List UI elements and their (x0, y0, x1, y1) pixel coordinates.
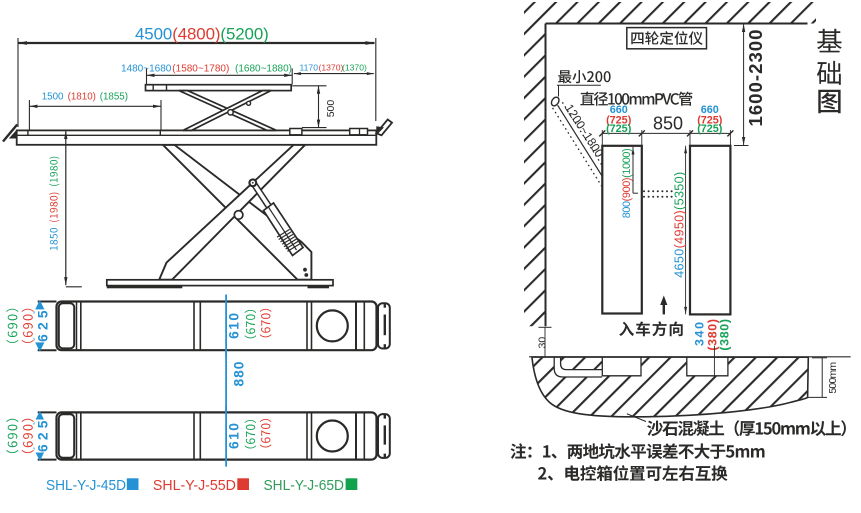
svg-text:SHL-Y-J-45D: SHL-Y-J-45D (46, 477, 126, 494)
svg-text:SHL-Y-J-65D: SHL-Y-J-65D (264, 477, 345, 494)
svg-text:30: 30 (536, 337, 548, 349)
svg-text:625: 625 (35, 420, 50, 452)
svg-text:SHL-Y-J-55D: SHL-Y-J-55D (153, 477, 236, 494)
svg-text:610: 610 (226, 423, 241, 449)
svg-text:610: 610 (226, 313, 241, 339)
svg-text:500mm: 500mm (828, 362, 839, 394)
svg-text:4650(4950)(5350): 4650(4950)(5350) (673, 172, 687, 278)
svg-text:850: 850 (653, 114, 683, 134)
svg-text:500: 500 (325, 100, 337, 118)
svg-text:625: 625 (35, 310, 50, 342)
svg-text:(380): (380) (717, 319, 731, 351)
svg-text:880: 880 (232, 361, 247, 386)
svg-text:340: 340 (692, 322, 706, 346)
svg-text:1600-2300: 1600-2300 (745, 30, 766, 127)
svg-text:1170(1370)(1370): 1170(1370)(1370) (300, 63, 367, 73)
svg-text:4500(4800)(5200): 4500(4800)(5200) (135, 25, 269, 44)
svg-text:1480~1680(1580~1780)(1680~1880: 1480~1680(1580~1780)(1680~1880) (121, 63, 292, 74)
svg-text:1500(1810)(1855): 1500(1810)(1855) (42, 91, 128, 102)
svg-text:800(900)(1000): 800(900)(1000) (621, 148, 633, 218)
svg-text:(725): (725) (697, 123, 723, 135)
svg-text:(725): (725) (606, 123, 632, 135)
